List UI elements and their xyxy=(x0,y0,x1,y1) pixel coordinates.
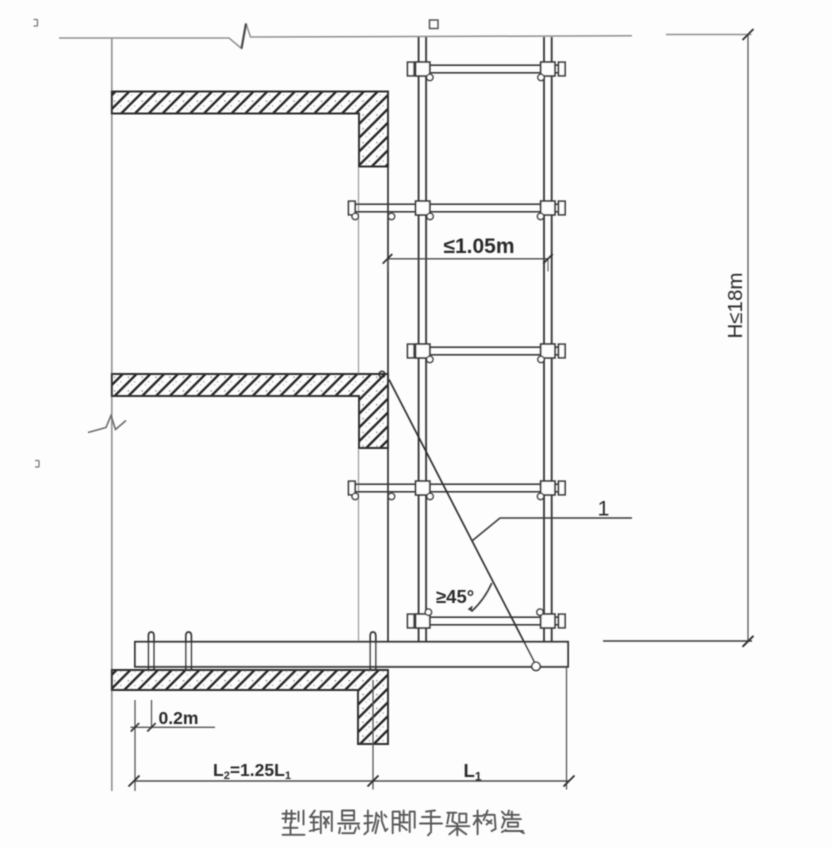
svg-text:≥45°: ≥45° xyxy=(436,586,474,607)
svg-text:0.2m: 0.2m xyxy=(159,708,199,728)
svg-text:H≤18m: H≤18m xyxy=(724,273,747,339)
svg-text:1: 1 xyxy=(598,497,610,521)
svg-text:≤1.05m: ≤1.05m xyxy=(443,235,514,258)
